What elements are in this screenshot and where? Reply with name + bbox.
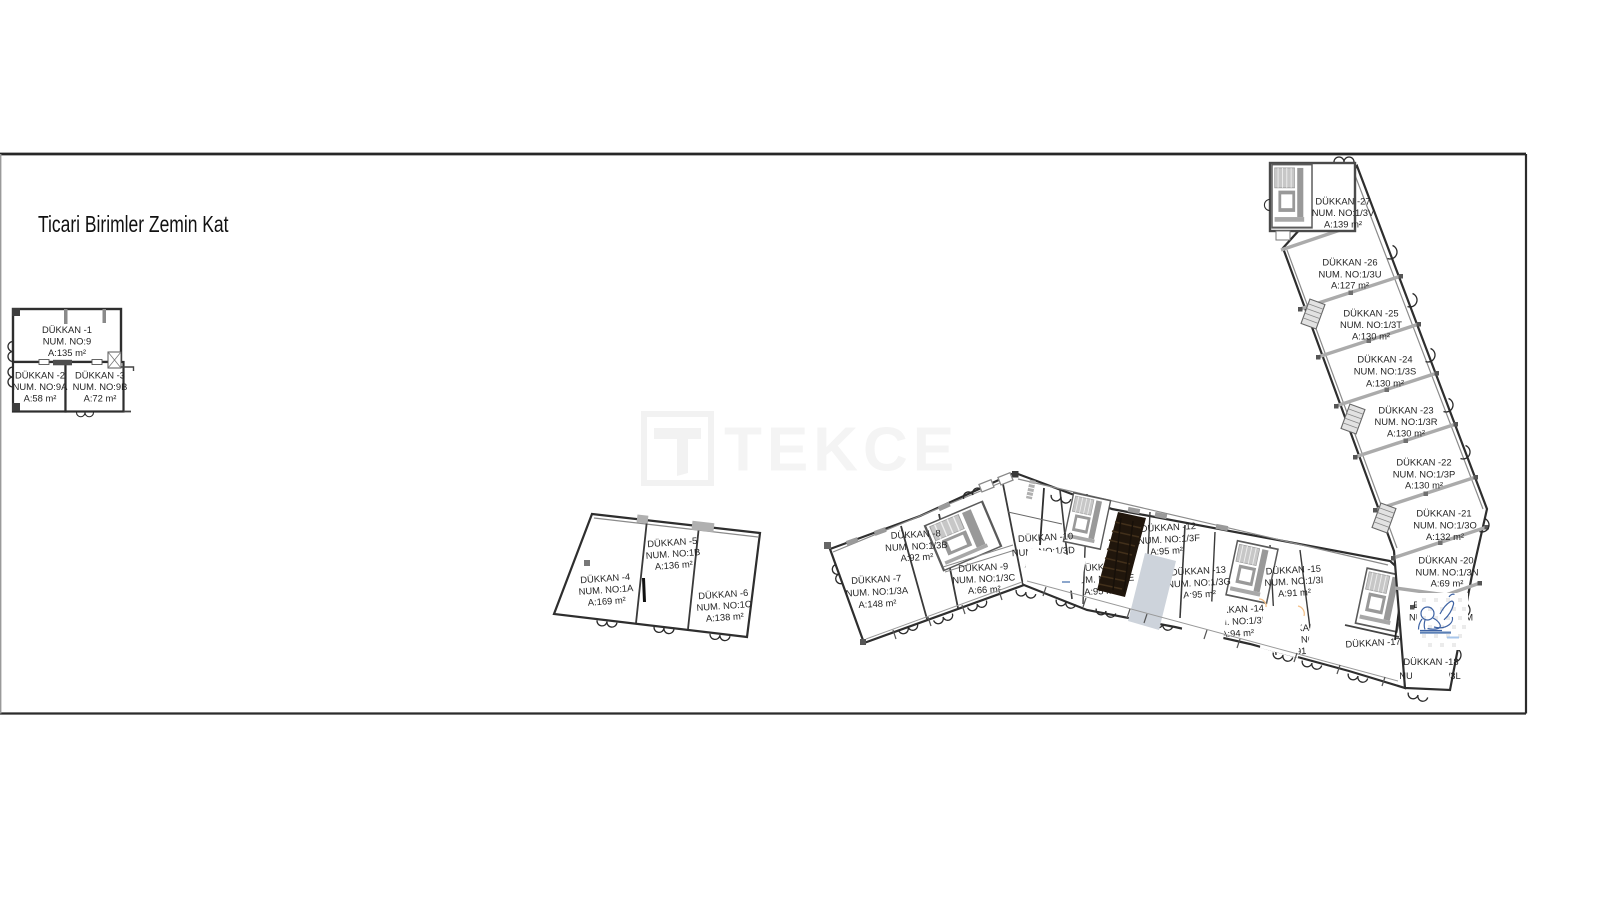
svg-text:TEKCE: TEKCE: [724, 416, 959, 485]
svg-text:DÜKKAN -1: DÜKKAN -1: [42, 324, 92, 335]
svg-text:DÜKKAN -26: DÜKKAN -26: [1322, 257, 1377, 268]
svg-text:A:72 m²: A:72 m²: [84, 393, 117, 404]
svg-text:A:148 m²: A:148 m²: [858, 597, 897, 610]
svg-text:A:130 m²: A:130 m²: [1405, 480, 1443, 491]
svg-text:DÜKKAN -27: DÜKKAN -27: [1315, 196, 1370, 207]
svg-text:DÜKKAN -3: DÜKKAN -3: [75, 370, 125, 381]
svg-text:DÜKKAN -21: DÜKKAN -21: [1416, 508, 1471, 519]
svg-text:DÜKKAN -24: DÜKKAN -24: [1357, 354, 1412, 365]
svg-text:NUM. NO:1/3V: NUM. NO:1/3V: [1312, 207, 1375, 218]
svg-text:NUM. NO:1/3R: NUM. NO:1/3R: [1374, 416, 1437, 427]
svg-text:A:132 m²: A:132 m²: [1426, 531, 1464, 542]
svg-text:A:69 m²: A:69 m²: [1431, 578, 1464, 589]
svg-text:A:130 m²: A:130 m²: [1366, 378, 1404, 389]
svg-text:A:91 m²: A:91 m²: [1278, 586, 1311, 599]
svg-text:A:135 m²: A:135 m²: [48, 347, 86, 358]
svg-text:DÜKKAN -2: DÜKKAN -2: [15, 370, 65, 381]
svg-text:A:66 m²: A:66 m²: [968, 583, 1001, 596]
svg-text:NUM. NO:1/3N: NUM. NO:1/3N: [1415, 567, 1478, 578]
svg-text:A:130 m²: A:130 m²: [1352, 331, 1390, 342]
svg-text:NUM. NO:9B: NUM. NO:9B: [73, 381, 128, 392]
svg-text:NUM. NO:9A: NUM. NO:9A: [13, 381, 68, 392]
svg-text:NUM. NO:1/3T: NUM. NO:1/3T: [1340, 319, 1402, 330]
svg-text:NUM. NO:1/3U: NUM. NO:1/3U: [1318, 269, 1381, 280]
svg-text:A:139 m²: A:139 m²: [1324, 219, 1362, 230]
svg-text:A:127 m²: A:127 m²: [1331, 280, 1369, 291]
svg-text:DÜKKAN -23: DÜKKAN -23: [1378, 405, 1433, 416]
svg-text:NUM. NO:9: NUM. NO:9: [43, 336, 91, 347]
svg-text:NUM. NO:1/3S: NUM. NO:1/3S: [1354, 366, 1417, 377]
svg-text:A:58 m²: A:58 m²: [24, 393, 57, 404]
svg-text:Ticari Birimler Zemin Kat: Ticari Birimler Zemin Kat: [38, 213, 229, 238]
svg-text:A:130 m²: A:130 m²: [1387, 428, 1425, 439]
svg-text:A:92 m²: A:92 m²: [900, 551, 933, 564]
svg-text:NUM. NO:1/3P: NUM. NO:1/3P: [1393, 469, 1456, 480]
svg-text:NUM. NO:1/3O: NUM. NO:1/3O: [1413, 520, 1477, 531]
svg-text:A:95 m²: A:95 m²: [1150, 544, 1183, 557]
svg-text:DÜKKAN -22: DÜKKAN -22: [1396, 457, 1451, 468]
svg-text:DÜKKAN -18: DÜKKAN -18: [1403, 656, 1458, 667]
svg-text:DÜKKAN -25: DÜKKAN -25: [1343, 308, 1398, 319]
svg-text:DÜKKAN -20: DÜKKAN -20: [1418, 555, 1473, 566]
